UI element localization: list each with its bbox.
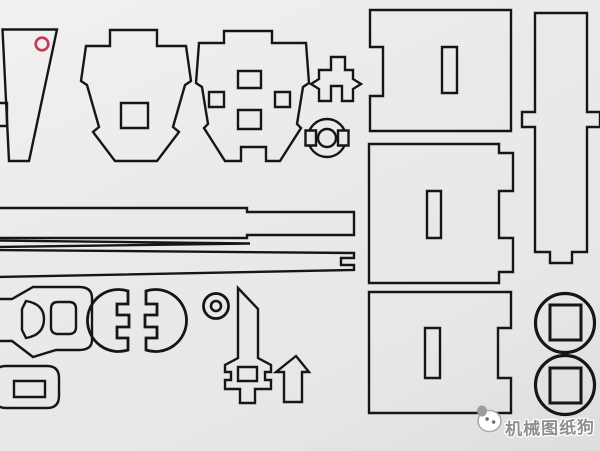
part-panel-1-slot xyxy=(442,47,457,93)
part-bulkhead-former-2 xyxy=(196,31,309,161)
part-bulkhead-former-1 xyxy=(81,30,191,161)
part-trapezoid-panel xyxy=(3,30,58,162)
part-grommet-inner xyxy=(211,301,221,311)
part-wheel-2 xyxy=(536,356,595,415)
part-panel-2-slot xyxy=(427,191,441,238)
watermark-text: 机械图纸狗 xyxy=(505,418,595,439)
part-buckle-body xyxy=(0,287,92,357)
part-buckle-square-hole xyxy=(51,302,76,334)
part-bulkhead-former-1-hole xyxy=(121,103,148,128)
part-panel-1 xyxy=(370,10,511,131)
part-notched-ring-notch-right xyxy=(338,131,349,146)
part-notched-ring-notch-left xyxy=(306,131,317,146)
part-sword-keel-hole xyxy=(238,367,257,381)
part-trapezoid-edge-slot xyxy=(0,103,7,126)
pattern-canvas xyxy=(0,0,600,451)
pattern-sheet-image: 机械图纸狗 xyxy=(0,0,600,451)
part-bulkhead-former-2-hole-top xyxy=(238,71,261,88)
part-long-strip-stepped xyxy=(0,208,354,238)
part-rounded-plate xyxy=(0,366,59,408)
dog-mascot-eye-right xyxy=(492,420,495,423)
part-panel-3-slot xyxy=(425,328,440,378)
part-bent-arrow xyxy=(276,356,309,402)
part-grommet-outer xyxy=(203,294,228,319)
dog-mascot-ear xyxy=(478,406,487,416)
part-wheel-1 xyxy=(536,294,595,353)
part-buckle-d-hole xyxy=(22,301,44,338)
part-half-disc-right xyxy=(145,290,187,352)
part-bulkhead-former-2-hole-right xyxy=(275,92,290,107)
part-rounded-plate-hole xyxy=(14,381,45,397)
part-wheel-2-hub-hole xyxy=(550,368,581,403)
part-crown-bracket xyxy=(311,57,361,101)
part-sword-keel xyxy=(225,288,271,403)
part-bulkhead-former-2-hole-left xyxy=(209,92,224,107)
part-half-disc-left xyxy=(87,289,129,351)
part-wheel-1-hub-hole xyxy=(550,305,581,340)
part-long-strip-thin xyxy=(0,241,250,248)
part-notched-ring-inner xyxy=(318,129,336,147)
part-long-strip-notched xyxy=(0,250,354,277)
part-bulkhead-former-2-hole-bottom xyxy=(238,110,261,129)
dog-mascot-eye-left xyxy=(486,417,489,420)
part-tall-spar xyxy=(522,13,600,263)
registration-red-circle xyxy=(36,38,49,51)
watermark: 机械图纸狗 xyxy=(505,413,596,440)
